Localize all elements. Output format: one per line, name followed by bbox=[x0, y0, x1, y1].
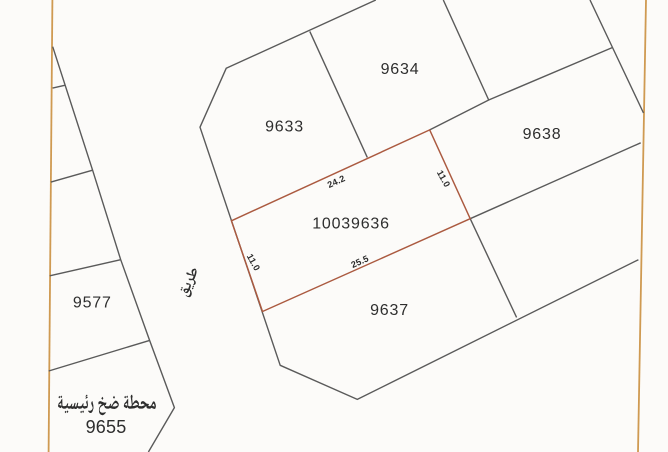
svg-text:9655: 9655 bbox=[86, 417, 127, 437]
svg-text:9634: 9634 bbox=[381, 61, 420, 78]
svg-text:10039636: 10039636 bbox=[312, 216, 390, 233]
svg-text:9638: 9638 bbox=[523, 126, 562, 143]
svg-text:9577: 9577 bbox=[73, 295, 112, 312]
svg-text:9633: 9633 bbox=[265, 119, 304, 136]
svg-text:9637: 9637 bbox=[370, 302, 409, 319]
